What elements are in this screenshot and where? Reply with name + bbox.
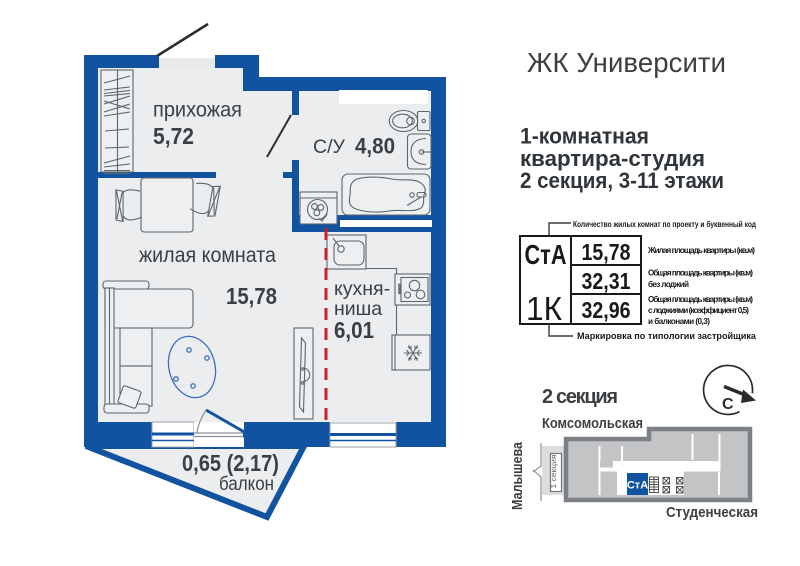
svg-text:1-комнатная: 1-комнатная bbox=[520, 124, 649, 149]
svg-text:с лоджиями (коэффициент 0,5): с лоджиями (коэффициент 0,5) bbox=[648, 306, 749, 315]
svg-text:5,72: 5,72 bbox=[153, 123, 194, 149]
svg-text:Общая площадь квартиры (кв.м): Общая площадь квартиры (кв.м) bbox=[648, 294, 753, 304]
svg-text:Комсомольская: Комсомольская bbox=[542, 415, 643, 432]
svg-text:жилая комната: жилая комната bbox=[139, 244, 276, 267]
svg-text:1 секция: 1 секция bbox=[549, 455, 558, 489]
svg-text:Общая площадь квартиры (кв.м): Общая площадь квартиры (кв.м) bbox=[648, 268, 753, 278]
svg-text:и балконами (0,3): и балконами (0,3) bbox=[648, 316, 710, 326]
svg-text:кухня-: кухня- bbox=[334, 278, 390, 300]
svg-text:15,78: 15,78 bbox=[582, 239, 631, 265]
svg-text:Студенческая: Студенческая bbox=[666, 504, 758, 521]
svg-text:Малышева: Малышева bbox=[509, 441, 526, 510]
svg-text:0,65 (2,17): 0,65 (2,17) bbox=[182, 450, 279, 476]
svg-text:С/У: С/У bbox=[313, 136, 346, 158]
svg-text:1К: 1К bbox=[526, 290, 563, 327]
svg-text:15,78: 15,78 bbox=[226, 283, 277, 309]
svg-text:прихожая: прихожая bbox=[153, 99, 242, 122]
svg-text:СтА: СтА bbox=[627, 480, 648, 492]
svg-text:Маркировка по типологии застро: Маркировка по типологии застройщика bbox=[577, 331, 757, 342]
svg-text:С: С bbox=[722, 396, 734, 413]
svg-text:4,80: 4,80 bbox=[355, 134, 395, 159]
svg-text:Жилая площадь квартиры (кв.м): Жилая площадь квартиры (кв.м) bbox=[647, 246, 755, 255]
svg-text:Количество жилых комнат по про: Количество жилых комнат по проекту и бук… bbox=[573, 219, 757, 229]
svg-text:32,96: 32,96 bbox=[582, 297, 631, 323]
svg-text:6,01: 6,01 bbox=[334, 317, 374, 343]
svg-text:32,31: 32,31 bbox=[582, 268, 631, 294]
svg-text:СтА: СтА bbox=[525, 239, 567, 270]
svg-text:2 секция: 2 секция bbox=[542, 386, 618, 408]
svg-text:2 секция, 3-11 этажи: 2 секция, 3-11 этажи bbox=[520, 168, 724, 193]
svg-text:ЖК Университи: ЖК Университи bbox=[527, 47, 726, 78]
svg-text:балкон: балкон bbox=[219, 474, 274, 495]
svg-text:без лоджий: без лоджий bbox=[648, 279, 689, 289]
